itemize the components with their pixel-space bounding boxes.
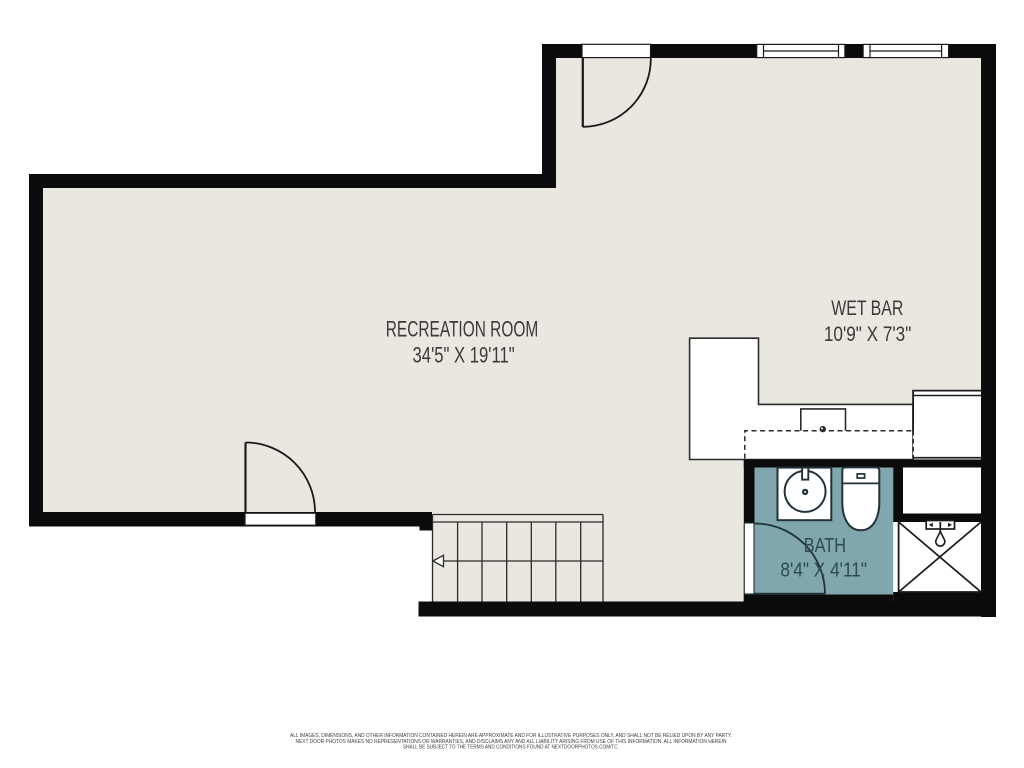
svg-text:10'9" X 7'3": 10'9" X 7'3" <box>824 322 911 346</box>
svg-text:SHALL BE SUBJECT TO THE TERMS: SHALL BE SUBJECT TO THE TERMS AND CONDIT… <box>403 745 619 751</box>
svg-text:WET BAR: WET BAR <box>831 296 903 320</box>
svg-text:RECREATION ROOM: RECREATION ROOM <box>386 316 539 341</box>
svg-text:BATH: BATH <box>804 535 846 557</box>
svg-text:8'4" X 4'11": 8'4" X 4'11" <box>780 560 867 582</box>
svg-text:34'5" X 19'11": 34'5" X 19'11" <box>413 343 515 368</box>
